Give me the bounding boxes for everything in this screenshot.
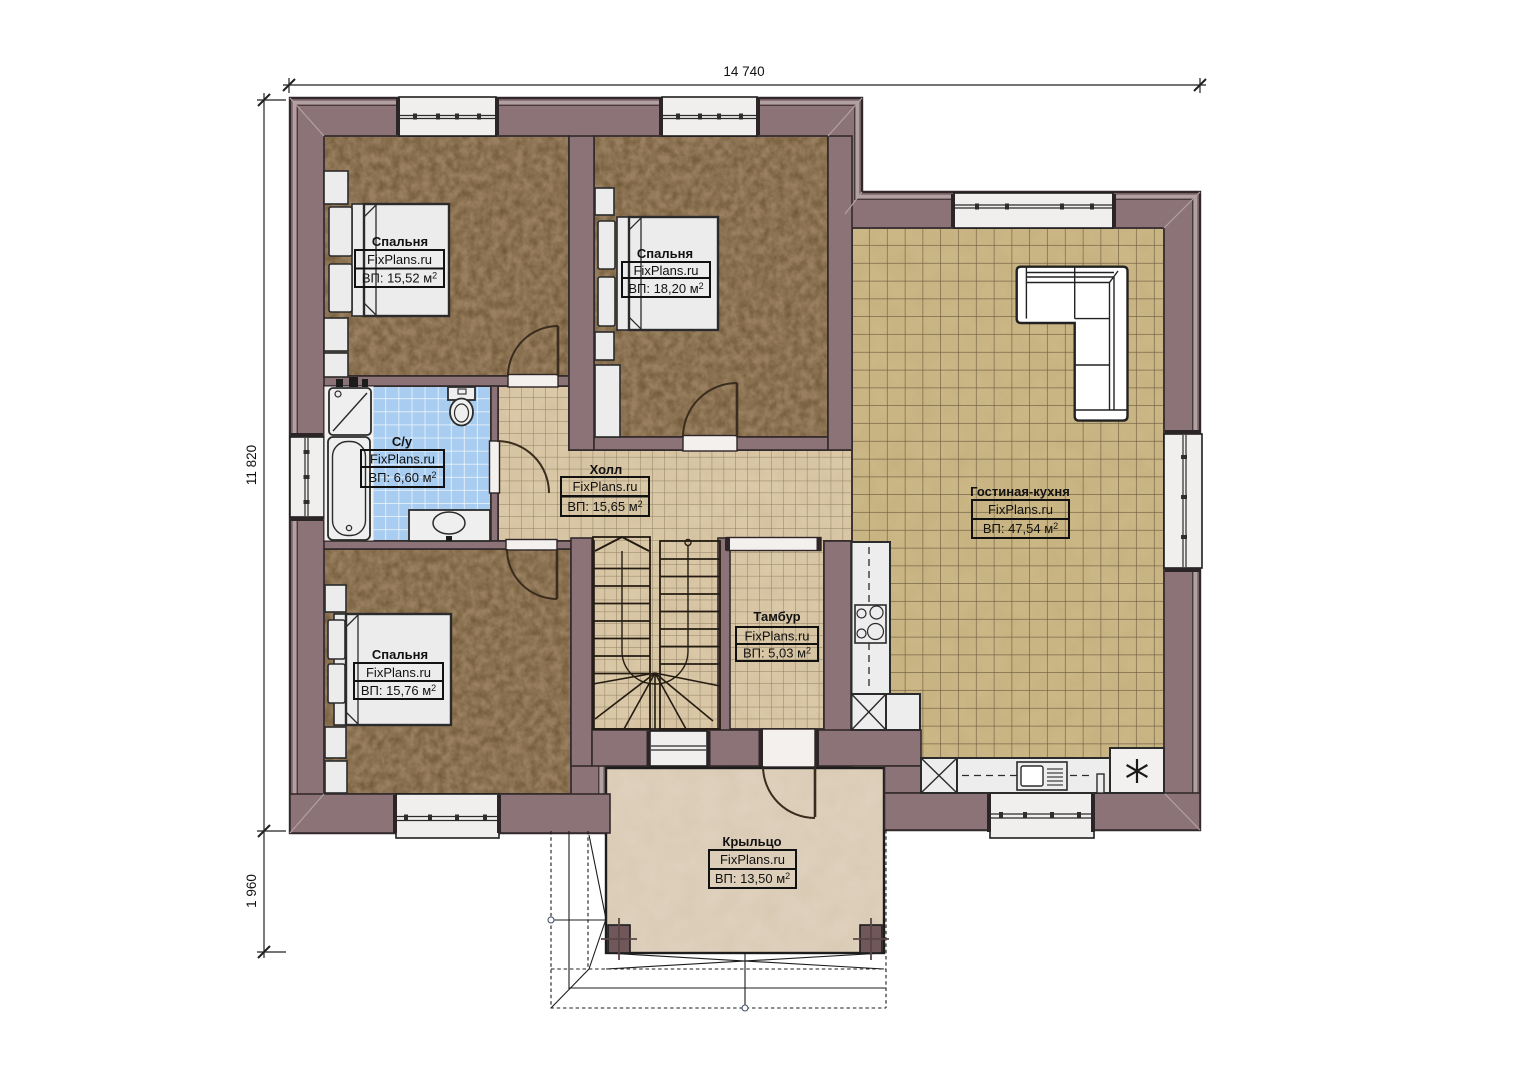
svg-text:Спальня: Спальня [372, 234, 428, 249]
svg-text:ВП: 6,60 м2: ВП: 6,60 м2 [368, 470, 436, 485]
svg-text:FixPlans.ru: FixPlans.ru [720, 852, 785, 867]
svg-text:Крыльцо: Крыльцо [722, 834, 781, 849]
svg-text:ВП: 5,03 м2: ВП: 5,03 м2 [743, 646, 811, 661]
svg-text:ВП: 18,20 м2: ВП: 18,20 м2 [628, 281, 703, 296]
svg-text:FixPlans.ru: FixPlans.ru [988, 502, 1053, 517]
svg-text:FixPlans.ru: FixPlans.ru [367, 252, 432, 267]
svg-text:14 740: 14 740 [723, 64, 764, 79]
svg-text:FixPlans.ru: FixPlans.ru [572, 479, 637, 494]
svg-text:11 820: 11 820 [244, 445, 259, 485]
svg-text:Холл: Холл [590, 462, 623, 477]
svg-text:Спальня: Спальня [637, 246, 693, 261]
svg-text:Тамбур: Тамбур [753, 609, 800, 624]
svg-text:Спальня: Спальня [372, 647, 428, 662]
svg-text:FixPlans.ru: FixPlans.ru [370, 452, 435, 467]
svg-text:ВП: 13,50 м2: ВП: 13,50 м2 [715, 871, 790, 886]
svg-text:1 960: 1 960 [244, 874, 259, 908]
svg-text:ВП: 15,65 м2: ВП: 15,65 м2 [567, 499, 642, 514]
svg-text:ВП: 15,52 м2: ВП: 15,52 м2 [362, 271, 437, 286]
svg-text:С/у: С/у [392, 434, 413, 449]
svg-text:FixPlans.ru: FixPlans.ru [366, 665, 431, 680]
svg-text:Гостиная-кухня: Гостиная-кухня [970, 484, 1070, 499]
svg-text:FixPlans.ru: FixPlans.ru [633, 263, 698, 278]
svg-text:FixPlans.ru: FixPlans.ru [744, 629, 809, 644]
svg-text:ВП: 47,54 м2: ВП: 47,54 м2 [983, 521, 1058, 536]
svg-text:ВП: 15,76 м2: ВП: 15,76 м2 [361, 683, 436, 698]
